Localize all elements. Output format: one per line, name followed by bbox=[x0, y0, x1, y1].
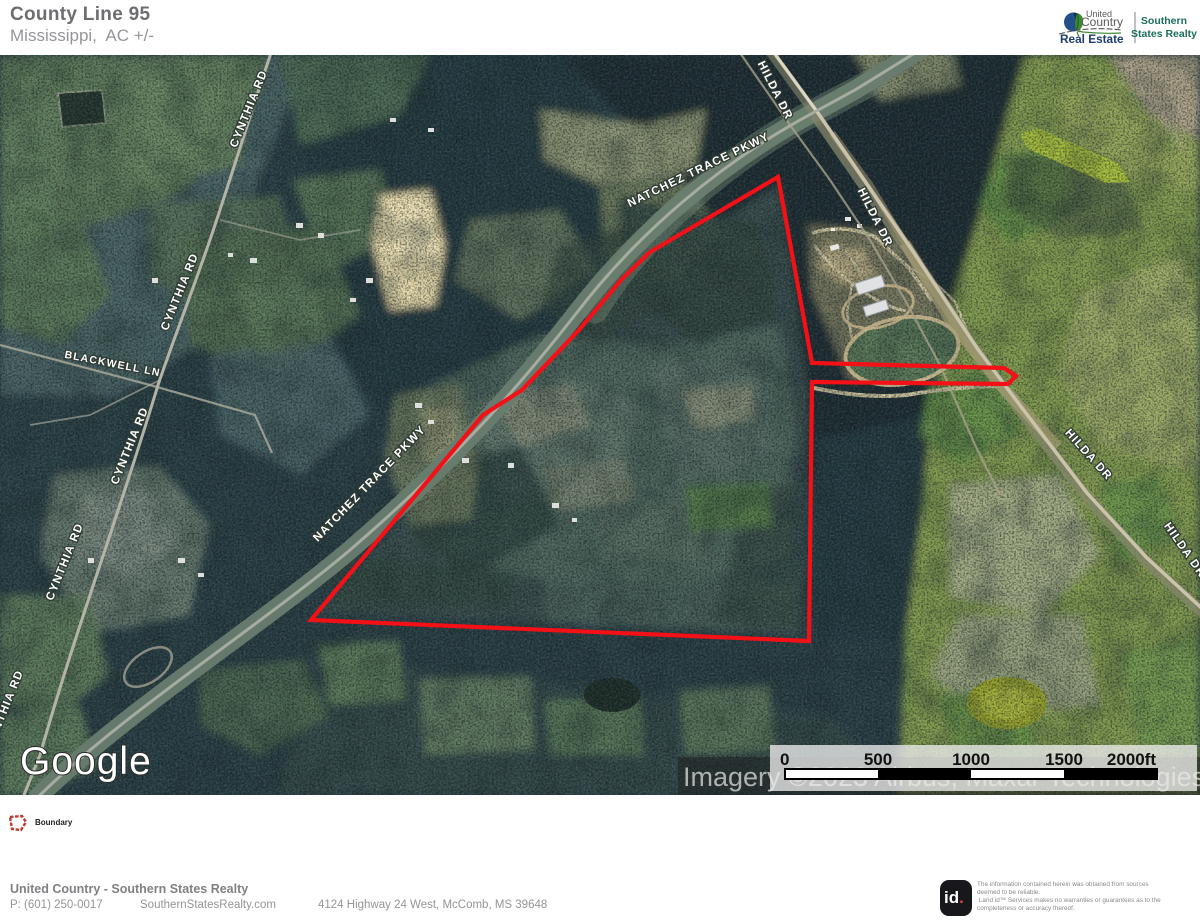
svg-text:1500: 1500 bbox=[1045, 750, 1083, 769]
svg-text:500: 500 bbox=[864, 750, 892, 769]
svg-text:States Realty: States Realty bbox=[1131, 28, 1197, 40]
svg-text:1000: 1000 bbox=[952, 750, 990, 769]
svg-text:Country: Country bbox=[1081, 15, 1123, 29]
svg-text:2000ft: 2000ft bbox=[1107, 750, 1156, 769]
svg-text:Real Estate: Real Estate bbox=[1060, 32, 1124, 46]
svg-text:Southern: Southern bbox=[1141, 15, 1187, 27]
svg-text:Google: Google bbox=[20, 740, 152, 783]
svg-text:0: 0 bbox=[780, 750, 789, 769]
